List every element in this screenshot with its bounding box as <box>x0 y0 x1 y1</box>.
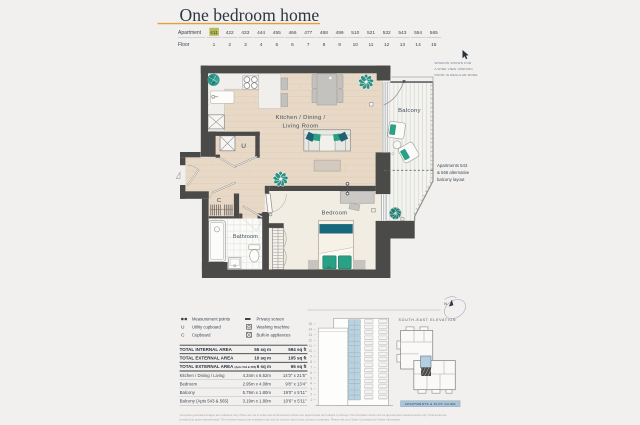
svg-text:15: 15 <box>431 42 437 48</box>
svg-text:A WIDE VIEW OPENING: A WIDE VIEW OPENING <box>435 67 474 71</box>
svg-text:565: 565 <box>430 30 438 36</box>
svg-text:594 sq ft: 594 sq ft <box>288 347 307 352</box>
svg-text:TOTAL EXTERNAL AREA (Apts 543: TOTAL EXTERNAL AREA (Apts 543 & 565) <box>180 364 257 369</box>
svg-text:Utility cupboard: Utility cupboard <box>192 325 222 330</box>
svg-text:15: 15 <box>308 322 312 326</box>
svg-text:3.19m x 1.80m: 3.19m x 1.80m <box>243 399 272 404</box>
svg-text:6: 6 <box>291 42 294 48</box>
svg-text:105 sq ft: 105 sq ft <box>288 356 307 361</box>
svg-text:balcony layout: balcony layout <box>437 177 465 182</box>
svg-text:4.34m x 6.52m: 4.34m x 6.52m <box>243 373 272 378</box>
svg-text:6: 6 <box>310 371 312 375</box>
svg-text:532: 532 <box>383 30 391 36</box>
svg-text:477: 477 <box>304 30 312 36</box>
svg-text:APARTMENTS & PLOT GUIDE: APARTMENTS & PLOT GUIDE <box>405 402 456 406</box>
svg-text:SOUTH-EAST ELEVATION: SOUTH-EAST ELEVATION <box>399 318 457 322</box>
svg-text:19'0" x 5'11": 19'0" x 5'11" <box>283 390 307 395</box>
svg-text:& 565 alternative: & 565 alternative <box>437 170 470 175</box>
svg-text:U: U <box>241 143 246 150</box>
svg-text:488: 488 <box>320 30 328 36</box>
svg-text:3: 3 <box>310 387 312 391</box>
svg-text:Living Room: Living Room <box>282 124 318 130</box>
svg-text:Balcony: Balcony <box>398 108 421 114</box>
svg-text:Built-in appliances: Built-in appliances <box>257 333 291 338</box>
svg-text:6 sq m: 6 sq m <box>257 364 271 369</box>
svg-text:Kitchen / Dining / Living: Kitchen / Dining / Living <box>180 373 226 378</box>
svg-text:13: 13 <box>308 333 312 337</box>
svg-text:499: 499 <box>336 30 344 36</box>
svg-text:11: 11 <box>369 42 374 48</box>
svg-text:9'8" x 13'4": 9'8" x 13'4" <box>285 382 307 387</box>
svg-text:11: 11 <box>309 344 313 348</box>
svg-text:One bedroom home: One bedroom home <box>180 5 320 25</box>
svg-text:Balcony: Balcony <box>180 390 196 395</box>
svg-text:8: 8 <box>310 360 312 364</box>
svg-text:4: 4 <box>310 382 312 386</box>
svg-text:13: 13 <box>400 42 406 48</box>
svg-text:10 sq m: 10 sq m <box>254 356 271 361</box>
svg-text:14: 14 <box>308 328 312 332</box>
svg-text:2.95m x 4.08m: 2.95m x 4.08m <box>243 382 272 387</box>
svg-text:U: U <box>181 325 184 330</box>
svg-text:provided as gross internal are: provided as gross internal areas. The fu… <box>180 418 401 422</box>
svg-text:422: 422 <box>226 30 234 36</box>
svg-text:TOTAL EXTERNAL AREA: TOTAL EXTERNAL AREA <box>180 356 235 361</box>
svg-text:Floor: Floor <box>178 42 190 48</box>
svg-text:DOOR IN REGULAR MODE: DOOR IN REGULAR MODE <box>435 73 478 77</box>
svg-text:Bedroom: Bedroom <box>321 211 347 217</box>
svg-text:554: 554 <box>414 30 422 36</box>
svg-text:Apartments 543: Apartments 543 <box>437 163 468 168</box>
svg-text:12: 12 <box>384 42 390 48</box>
svg-text:5: 5 <box>275 42 278 48</box>
svg-text:1: 1 <box>310 398 312 402</box>
svg-text:510: 510 <box>351 30 359 36</box>
svg-text:2: 2 <box>310 393 312 397</box>
svg-text:411: 411 <box>210 30 218 36</box>
svg-text:Balcony (Apts 543 & 565): Balcony (Apts 543 & 565) <box>180 399 229 404</box>
svg-text:Kitchen / Dining /: Kitchen / Dining / <box>276 115 326 121</box>
svg-text:5: 5 <box>310 376 312 380</box>
svg-text:5.79m x 1.80m: 5.79m x 1.80m <box>243 390 272 395</box>
svg-text:TOTAL INTERNAL AREA: TOTAL INTERNAL AREA <box>180 347 233 352</box>
svg-text:12: 12 <box>308 338 312 342</box>
svg-text:8: 8 <box>323 42 326 48</box>
svg-text:Cupboard: Cupboard <box>192 333 211 338</box>
svg-text:433: 433 <box>241 30 249 36</box>
svg-text:7: 7 <box>310 366 312 370</box>
svg-text:65 sq ft: 65 sq ft <box>291 364 307 369</box>
svg-text:14: 14 <box>415 42 421 48</box>
svg-text:Measurement points: Measurement points <box>192 317 230 322</box>
svg-text:2: 2 <box>228 42 231 48</box>
svg-text:N: N <box>444 302 447 306</box>
svg-text:1: 1 <box>213 42 216 48</box>
svg-text:Washing machine: Washing machine <box>257 325 291 330</box>
svg-text:55 sq m: 55 sq m <box>254 347 271 352</box>
svg-text:7: 7 <box>307 42 310 48</box>
svg-text:Bathroom: Bathroom <box>233 234 258 240</box>
svg-text:10: 10 <box>308 349 312 353</box>
svg-text:Apartment: Apartment <box>178 30 202 36</box>
svg-text:3: 3 <box>244 42 247 48</box>
svg-text:C: C <box>217 198 221 204</box>
svg-text:4: 4 <box>260 42 263 48</box>
svg-text:455: 455 <box>273 30 281 36</box>
svg-text:521: 521 <box>367 30 375 36</box>
svg-text:9: 9 <box>338 42 341 48</box>
svg-text:543: 543 <box>398 30 406 36</box>
svg-text:444: 444 <box>257 30 265 36</box>
svg-text:9: 9 <box>310 355 312 359</box>
svg-text:Privacy screen: Privacy screen <box>257 317 285 322</box>
svg-text:14'3" x 21'5": 14'3" x 21'5" <box>283 373 307 378</box>
svg-text:Computer generated images are: Computer generated images are indicative… <box>180 413 447 417</box>
svg-text:Bedroom: Bedroom <box>180 382 198 387</box>
svg-text:10: 10 <box>353 42 359 48</box>
svg-text:466: 466 <box>288 30 296 36</box>
svg-text:WINDOW SHOWN FOR: WINDOW SHOWN FOR <box>435 61 472 65</box>
svg-text:10'6" x 5'11": 10'6" x 5'11" <box>283 399 307 404</box>
